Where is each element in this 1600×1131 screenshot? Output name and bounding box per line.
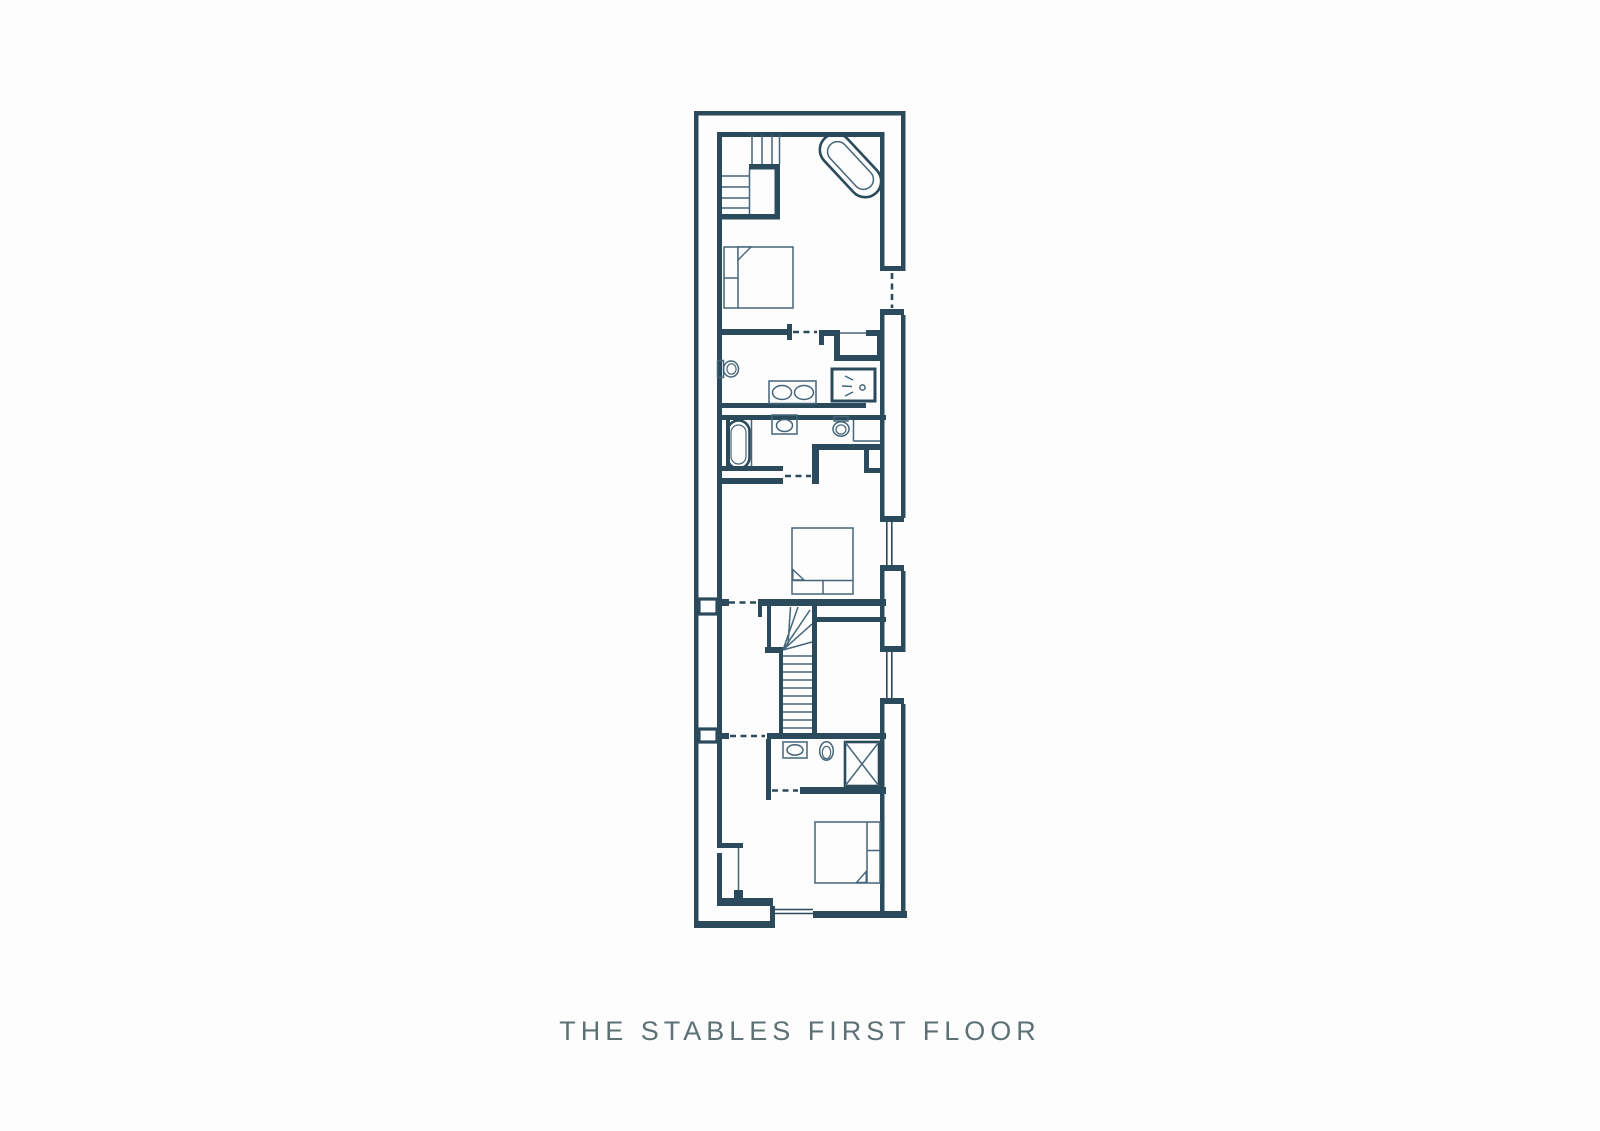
exterior-walls — [694, 111, 907, 928]
bathtub-icon-2 — [728, 420, 752, 469]
double-bed-icon — [724, 247, 793, 308]
page: THE STABLES FIRST FLOOR — [0, 0, 1600, 1131]
cupboard-lines — [854, 420, 881, 441]
basin-icon-3 — [783, 742, 807, 758]
upper-staircase-icon — [722, 135, 780, 214]
double-basin-icon — [769, 381, 816, 404]
doorway-openings — [729, 273, 892, 791]
double-bed-icon-2 — [792, 528, 853, 594]
bathtub-icon — [813, 127, 888, 204]
plan-title: THE STABLES FIRST FLOOR — [0, 1016, 1600, 1047]
double-bed-icon-3 — [815, 822, 880, 883]
toilet-icon-3 — [820, 742, 834, 760]
main-staircase-icon — [783, 607, 812, 728]
shower-icon — [832, 369, 875, 401]
wall-ties — [699, 599, 717, 742]
shower-cubicle-icon — [845, 742, 879, 786]
floor-plan — [0, 0, 1600, 1131]
